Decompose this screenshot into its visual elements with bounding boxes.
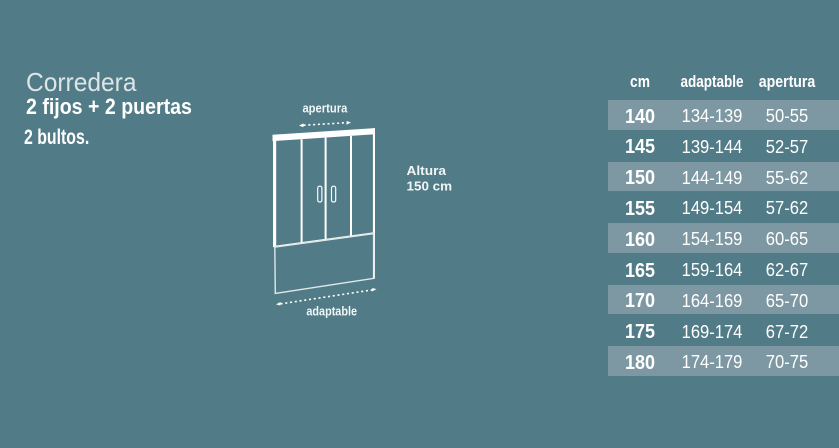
svg-text:Altura: Altura — [407, 163, 447, 178]
svg-text:adaptable: adaptable — [306, 303, 357, 318]
svg-text:150 cm: 150 cm — [407, 178, 453, 193]
svg-text:apertura: apertura — [302, 102, 348, 116]
